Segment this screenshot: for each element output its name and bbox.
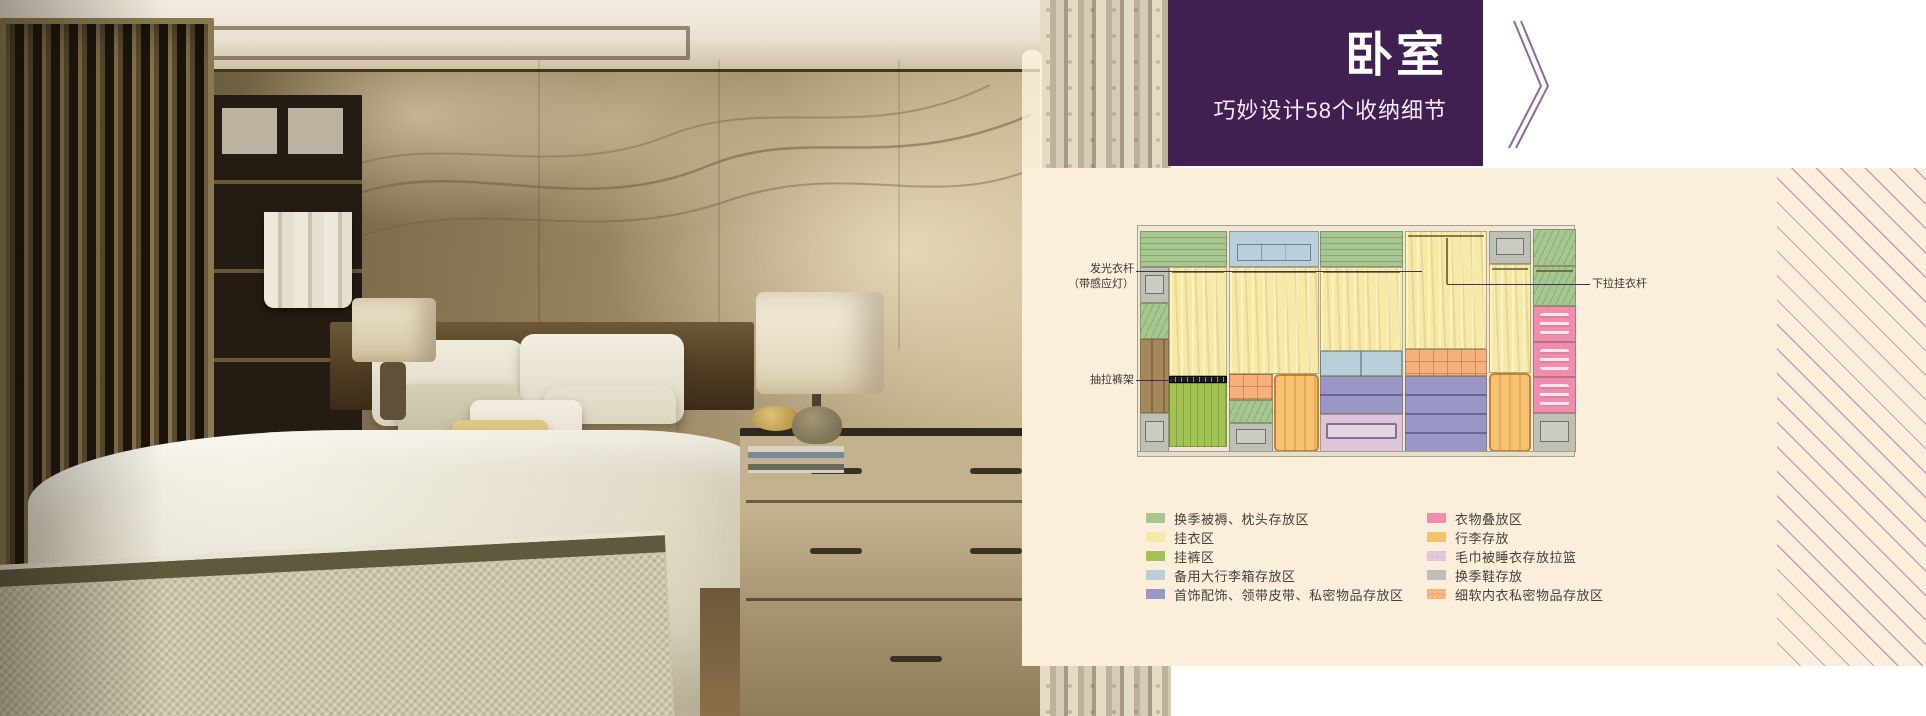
legend-label: 换季被褥、枕头存放区 bbox=[1174, 509, 1309, 528]
wardrobe-plinth bbox=[1138, 451, 1574, 456]
zone-cell-luggage bbox=[1489, 373, 1531, 452]
legend-swatch-shoes-icon bbox=[1427, 570, 1446, 580]
callout-glow-rail-line2: （带感应灯） bbox=[1058, 277, 1134, 292]
zone-cell-big-luggage bbox=[1320, 351, 1403, 376]
zone-cell-basket bbox=[1320, 414, 1403, 452]
legend-swatch-underwear-icon bbox=[1427, 589, 1446, 599]
callout-line-pants-rack bbox=[1136, 380, 1172, 381]
zone-cell-underwear bbox=[1405, 349, 1487, 376]
callout-pull-down-rail: 下拉挂衣杆 bbox=[1592, 277, 1682, 292]
legend-label: 挂衣区 bbox=[1174, 528, 1215, 547]
legend-item: 首饰配饰、领带皮带、私密物品存放区 bbox=[1146, 587, 1404, 601]
legend-label: 毛巾被睡衣存放拉篮 bbox=[1455, 547, 1577, 566]
zone-cell-big-luggage bbox=[1229, 231, 1319, 267]
bedroom-photo bbox=[0, 0, 1171, 716]
legend-label: 行李存放 bbox=[1455, 528, 1509, 547]
zone-cell-duvet bbox=[1229, 400, 1273, 423]
legend-swatch-jewelry-icon bbox=[1146, 589, 1165, 599]
legend-swatch-duvet-icon bbox=[1146, 513, 1165, 523]
zone-cell-duvet bbox=[1140, 303, 1169, 339]
zone-cell-luggage bbox=[1274, 374, 1319, 452]
double-chevron-icon bbox=[1496, 14, 1554, 156]
legend-item: 细软内衣私密物品存放区 bbox=[1427, 587, 1604, 601]
legend-label: 挂裤区 bbox=[1174, 547, 1215, 566]
zone-cell-hang-pulldown bbox=[1405, 231, 1487, 349]
legend-item: 行李存放 bbox=[1427, 530, 1604, 544]
garment-bags-cell bbox=[1140, 339, 1169, 413]
zone-cell-duvet bbox=[1533, 266, 1576, 306]
zone-cell-fold bbox=[1533, 342, 1576, 377]
zone-cell-fold bbox=[1533, 306, 1576, 342]
legend-swatch-pants-icon bbox=[1146, 551, 1165, 561]
zone-cell-duvet bbox=[1533, 229, 1576, 266]
legend-right-column: 衣物叠放区 行李存放 毛巾被睡衣存放拉篮 换季鞋存放 细软内衣私密物品存放区 bbox=[1427, 511, 1604, 606]
title-block: 卧室 巧妙设计58个收纳细节 bbox=[1168, 0, 1483, 166]
callout-glow-rail-line1: 发光衣杆 bbox=[1058, 262, 1134, 277]
callout-pull-down-rail-text: 下拉挂衣杆 bbox=[1592, 277, 1682, 292]
zone-cell-jewelry bbox=[1405, 376, 1487, 452]
zone-cell-shoes bbox=[1140, 267, 1169, 303]
legend-item: 挂衣区 bbox=[1146, 530, 1404, 544]
wardrobe-diagram bbox=[1137, 225, 1575, 457]
legend-swatch-hang-icon bbox=[1146, 532, 1165, 542]
zone-cell-fold bbox=[1533, 377, 1576, 413]
legend-swatch-luggage-icon bbox=[1427, 532, 1446, 542]
legend-label: 细软内衣私密物品存放区 bbox=[1455, 585, 1604, 604]
legend-label: 衣物叠放区 bbox=[1455, 509, 1523, 528]
zone-cell-pants bbox=[1169, 383, 1227, 447]
zone-cell-hang bbox=[1229, 267, 1319, 374]
legend-item: 挂裤区 bbox=[1146, 549, 1404, 563]
legend-swatch-basket-icon bbox=[1427, 551, 1446, 561]
legend-swatch-big-luggage-icon bbox=[1146, 570, 1165, 580]
legend-item: 衣物叠放区 bbox=[1427, 511, 1604, 525]
zone-cell-hang bbox=[1489, 264, 1531, 373]
zone-cell-underwear bbox=[1229, 374, 1273, 400]
photo-vignette bbox=[0, 0, 1171, 716]
legend-label: 备用大行李箱存放区 bbox=[1174, 566, 1296, 585]
zone-cell-hang bbox=[1169, 267, 1227, 376]
page: 卧室 巧妙设计58个收纳细节 bbox=[0, 0, 1926, 716]
callout-glow-rail: 发光衣杆 （带感应灯） bbox=[1058, 262, 1134, 292]
zone-cell-duvet bbox=[1320, 231, 1403, 267]
zone-cell-shoes bbox=[1140, 413, 1169, 452]
zone-cell-shoes bbox=[1489, 231, 1531, 264]
zone-cell-jewelry bbox=[1320, 376, 1403, 414]
legend-item: 换季被褥、枕头存放区 bbox=[1146, 511, 1404, 525]
zone-cell-hang bbox=[1320, 267, 1403, 351]
zone-cell-shoes bbox=[1533, 413, 1576, 452]
legend-item: 毛巾被睡衣存放拉篮 bbox=[1427, 549, 1604, 563]
legend-left-column: 换季被褥、枕头存放区 挂衣区 挂裤区 备用大行李箱存放区 首饰配饰、领带皮带、私… bbox=[1146, 511, 1404, 606]
callout-pants-rack-text: 抽拉裤架 bbox=[1058, 373, 1134, 388]
pull-out-pants-rack-bar bbox=[1169, 376, 1227, 383]
callout-line-pull-down-rail bbox=[1447, 284, 1590, 285]
diagonal-stripes-decoration bbox=[1777, 168, 1926, 666]
legend-label: 首饰配饰、领带皮带、私密物品存放区 bbox=[1174, 585, 1404, 604]
legend-swatch-fold-icon bbox=[1427, 513, 1446, 523]
legend-label: 换季鞋存放 bbox=[1455, 566, 1523, 585]
page-title: 卧室 bbox=[1345, 30, 1447, 83]
legend-item: 换季鞋存放 bbox=[1427, 568, 1604, 582]
callout-line-glow-rail bbox=[1136, 271, 1422, 272]
zone-cell-shoes bbox=[1229, 423, 1273, 452]
legend-item: 备用大行李箱存放区 bbox=[1146, 568, 1404, 582]
zone-cell-duvet bbox=[1140, 231, 1227, 267]
callout-pants-rack: 抽拉裤架 bbox=[1058, 373, 1134, 388]
page-subtitle: 巧妙设计58个收纳细节 bbox=[1214, 93, 1447, 125]
